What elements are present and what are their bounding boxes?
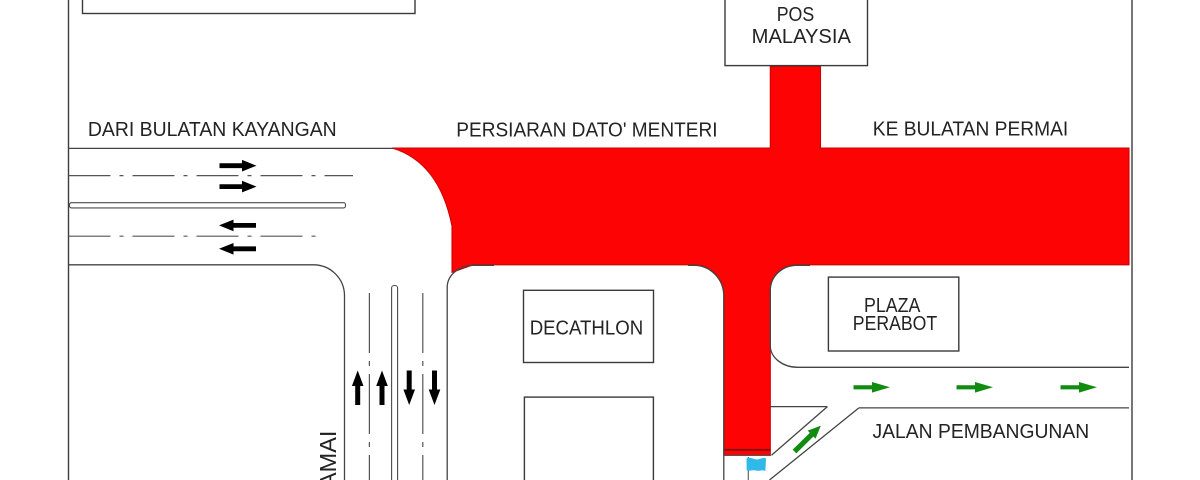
svg-text:DAMAI: DAMAI: [315, 431, 341, 480]
svg-text:MALAYSIA: MALAYSIA: [752, 26, 852, 48]
svg-text:DECATHLON: DECATHLON: [530, 317, 644, 339]
svg-text:POS: POS: [777, 4, 815, 26]
svg-text:PERSIARAN DATO' MENTERI: PERSIARAN DATO' MENTERI: [456, 119, 717, 141]
svg-text:JALAN PEMBANGUNAN: JALAN PEMBANGUNAN: [873, 421, 1090, 443]
svg-text:KE BULATAN PERMAI: KE BULATAN PERMAI: [873, 119, 1068, 141]
svg-text:DARI BULATAN KAYANGAN: DARI BULATAN KAYANGAN: [88, 119, 337, 141]
svg-text:PERABOT: PERABOT: [853, 313, 937, 335]
